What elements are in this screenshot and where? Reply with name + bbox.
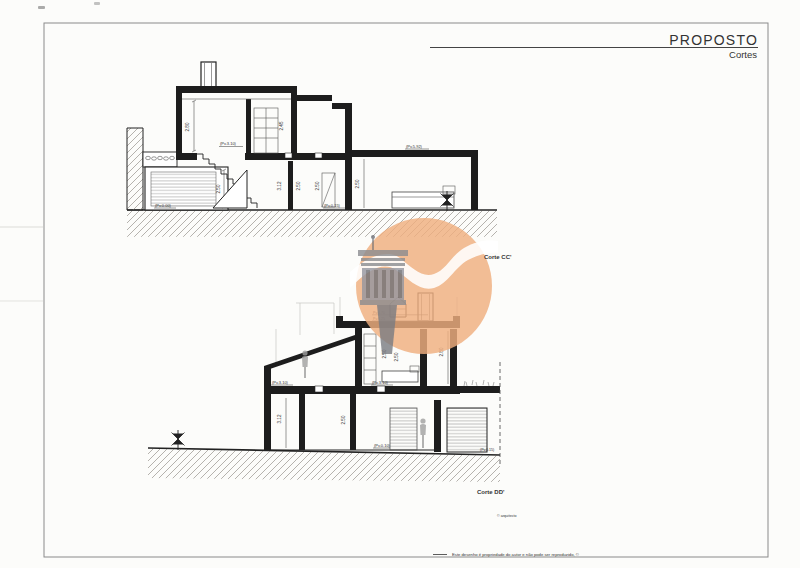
terrace-slab — [457, 386, 500, 393]
interior-stair — [390, 408, 417, 450]
dim-label: 2.50 — [355, 179, 360, 188]
page-subtitle: Cortes — [729, 49, 757, 60]
level-label: (Pv.5.92) — [406, 144, 423, 149]
dim-label: 2.50 — [341, 415, 346, 424]
dim-label: 2.50 — [216, 184, 221, 193]
dim-label: 2.50 — [296, 181, 301, 190]
drawing-sheet: PROPOSTO Cortes — [0, 0, 800, 568]
planter — [143, 152, 177, 167]
wing-roof-slab — [352, 150, 478, 157]
level-label: (Pv.3.10) — [220, 141, 237, 146]
floor-slab — [264, 386, 460, 394]
chimney — [201, 62, 216, 87]
level-label: (Pv.3.10) — [272, 380, 289, 385]
dim-label: 3.12 — [277, 181, 282, 190]
architect-credit: © arquitecto — [497, 514, 516, 518]
garage-door — [151, 172, 216, 206]
level-label: (Pv.0.00) — [155, 203, 172, 208]
retaining-earth — [127, 128, 143, 210]
garage-door — [447, 408, 487, 452]
section-caption-dd: Corte DD' — [477, 489, 505, 495]
level-label: (Pv.0.15) — [480, 448, 494, 452]
dim-label: 2.50 — [315, 181, 320, 190]
level-label: (Pv.0.10) — [374, 443, 391, 448]
copyright-note: Este desenho é propriedade do autor e nã… — [452, 552, 580, 557]
section-caption-cc: Corte CC' — [484, 254, 512, 260]
dim-label: 2.50 — [394, 352, 399, 361]
page-title: PROPOSTO — [669, 32, 758, 48]
level-label: (Pv.0.15) — [324, 203, 341, 208]
bed — [392, 192, 454, 208]
level-label: (Pv.3.10) — [372, 380, 389, 385]
dim-label: 3.12 — [277, 414, 282, 423]
footer-copyright: Este desenho é propriedade do autor e nã… — [433, 552, 580, 557]
dim-label: 2.80 — [185, 122, 190, 131]
dim-label: 2.45 — [279, 121, 284, 130]
